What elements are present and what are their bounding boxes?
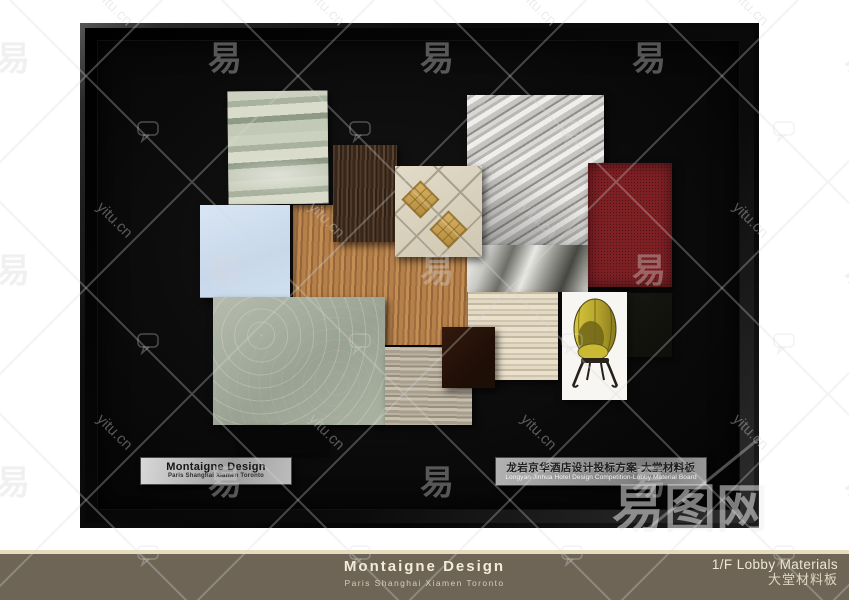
gold-mosaic-inlay <box>401 180 439 218</box>
chocolate-laminate-swatch <box>442 327 495 388</box>
sky-blue-laminate-swatch <box>200 205 290 298</box>
footer-project-subtitle: 大堂材料板 <box>712 573 838 588</box>
culture-stone-swatch <box>467 95 604 245</box>
screenshot-canvas: Montaigne Design Paris Shanghai Xiamen T… <box>0 0 849 600</box>
project-title-zh: 龙岩京华酒店设计投标方案-大堂材料板 <box>506 462 695 474</box>
canopy-chair-photo-card <box>562 292 627 400</box>
ceramic-floor-tile-swatch <box>395 166 482 257</box>
green-onyx-marble-swatch <box>227 90 328 204</box>
gold-mosaic-inlay <box>429 210 467 248</box>
abstract-grey-marble-swatch <box>467 245 588 292</box>
plaque-title: Montaigne Design <box>166 462 266 473</box>
floral-wallcovering-swatch <box>213 297 385 425</box>
project-title-en: Longyan Jinhua Hotel Design Competition-… <box>505 474 696 482</box>
red-carpet-swatch <box>588 163 672 287</box>
footer-project-title: 1/F Lobby Materials <box>712 557 838 572</box>
project-plaque: 龙岩京华酒店设计投标方案-大堂材料板 Longyan Jinhua Hotel … <box>495 457 707 486</box>
footer-project-block: 1/F Lobby Materials 大堂材料板 <box>712 557 838 588</box>
designer-plaque: Montaigne Design Paris Shanghai Xiamen T… <box>140 457 292 485</box>
black-leather-swatch <box>235 425 327 455</box>
canopy-chair-illustration <box>565 296 625 396</box>
plaque-subtitle: Paris Shanghai Xiamen Toronto <box>168 473 264 480</box>
walnut-wood-veneer-swatch <box>333 145 397 242</box>
